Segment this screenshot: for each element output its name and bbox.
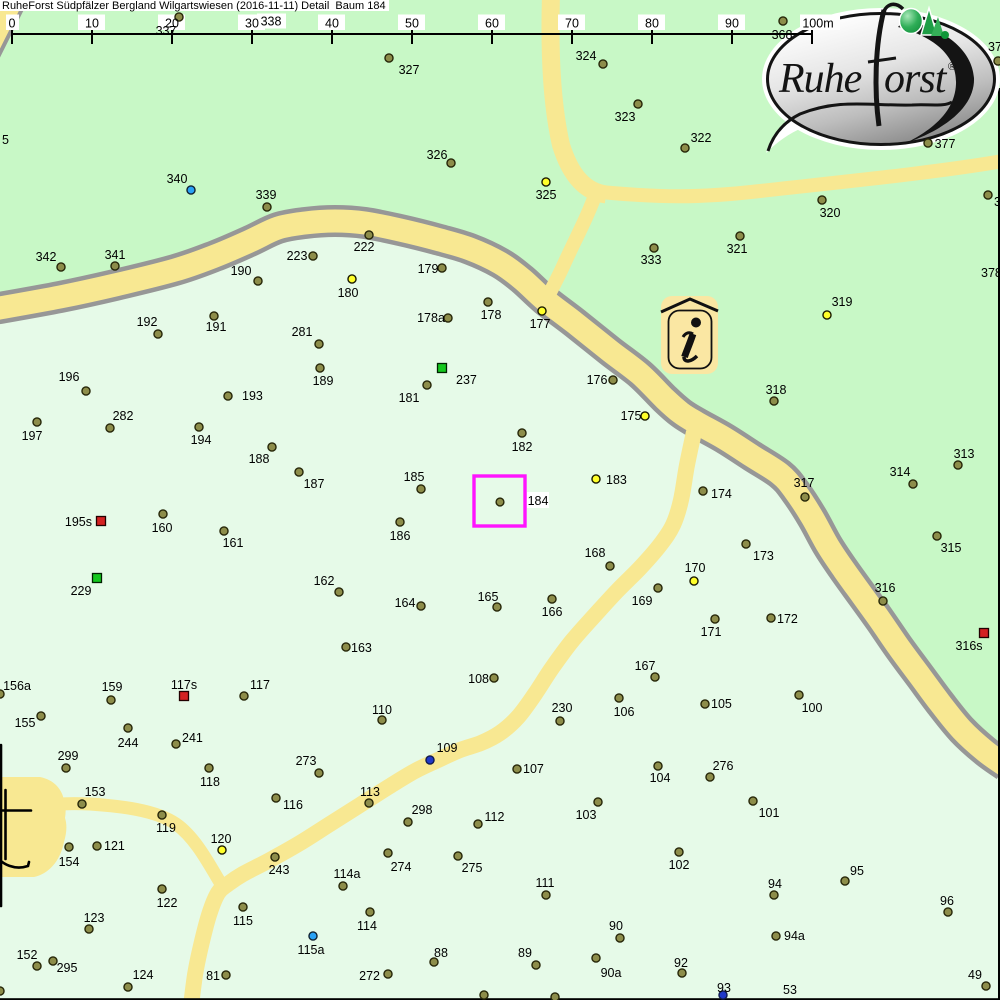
svg-text:100m: 100m [802,17,833,31]
svg-text:241: 241 [182,731,203,745]
svg-text:275: 275 [462,861,483,875]
svg-text:318: 318 [766,383,787,397]
svg-text:173: 173 [753,549,774,563]
svg-text:322: 322 [691,131,712,145]
svg-text:40: 40 [325,17,339,31]
svg-text:120: 120 [211,832,232,846]
svg-text:117s: 117s [171,678,197,692]
svg-text:187: 187 [304,477,325,491]
svg-text:326: 326 [427,148,448,162]
svg-text:180: 180 [338,286,359,300]
svg-text:orst: orst [884,56,948,102]
svg-text:378: 378 [981,266,1000,280]
svg-text:116: 116 [283,798,303,812]
svg-text:315: 315 [941,541,962,555]
svg-text:339: 339 [256,188,277,202]
svg-text:53: 53 [783,983,797,997]
svg-text:161: 161 [223,536,244,550]
svg-text:272: 272 [359,969,380,983]
svg-text:319: 319 [832,295,853,309]
svg-text:111: 111 [535,876,554,890]
svg-text:0: 0 [9,17,16,31]
svg-text:112: 112 [485,810,505,824]
svg-text:107: 107 [523,762,544,776]
svg-text:169: 169 [632,594,653,608]
svg-text:124: 124 [133,968,154,982]
svg-text:321: 321 [727,242,748,256]
svg-text:183: 183 [606,473,627,487]
svg-text:170: 170 [685,561,706,575]
svg-text:110: 110 [372,703,392,717]
svg-text:94a: 94a [784,929,805,943]
svg-text:Ruhe: Ruhe [778,56,862,102]
svg-text:5: 5 [2,133,9,147]
svg-text:123: 123 [84,911,105,925]
svg-text:194: 194 [191,433,212,447]
svg-text:186: 186 [390,529,411,543]
svg-text:90: 90 [609,919,623,933]
svg-text:340: 340 [167,172,188,186]
svg-text:188: 188 [249,452,270,466]
svg-text:159: 159 [102,680,123,694]
svg-text:196: 196 [59,370,80,384]
svg-text:156a: 156a [3,679,31,693]
svg-text:185: 185 [404,470,425,484]
svg-text:176: 176 [587,373,608,387]
svg-text:323: 323 [615,110,636,124]
svg-text:171: 171 [701,625,722,639]
svg-text:30: 30 [245,17,259,31]
svg-text:324: 324 [576,49,597,63]
svg-text:94: 94 [768,877,782,891]
svg-text:89: 89 [518,946,532,960]
svg-text:338: 338 [261,15,282,29]
svg-text:93: 93 [717,981,731,995]
svg-text:164: 164 [395,596,416,610]
svg-text:222: 222 [354,240,375,254]
svg-text:165: 165 [478,590,499,604]
svg-text:195s: 195s [65,515,92,529]
svg-text:103: 103 [576,808,597,822]
svg-text:181: 181 [399,391,420,405]
svg-text:184: 184 [528,494,549,508]
svg-text:193: 193 [242,389,263,403]
svg-text:172: 172 [777,612,798,626]
svg-text:178a: 178a [417,311,445,325]
svg-text:163: 163 [351,641,372,655]
svg-text:®: ® [948,61,956,73]
svg-text:104: 104 [650,771,671,785]
svg-text:313: 313 [954,447,975,461]
svg-text:121: 121 [104,839,125,853]
svg-text:368: 368 [772,28,793,42]
svg-text:105: 105 [711,697,732,711]
svg-text:244: 244 [118,736,139,750]
svg-text:237: 237 [456,373,477,387]
svg-text:102: 102 [669,858,690,872]
svg-text:162: 162 [314,574,335,588]
svg-text:20: 20 [165,17,179,31]
svg-text:191: 191 [206,320,227,334]
svg-text:119: 119 [156,821,176,835]
svg-text:49: 49 [968,968,982,982]
svg-text:154: 154 [59,855,80,869]
svg-text:90: 90 [725,17,739,31]
svg-text:152: 152 [17,948,38,962]
svg-text:282: 282 [113,409,134,423]
svg-text:376: 376 [988,40,1000,54]
svg-text:341: 341 [105,248,126,262]
svg-text:276: 276 [713,759,734,773]
svg-text:92: 92 [674,956,688,970]
svg-text:81: 81 [206,969,220,983]
svg-text:113: 113 [360,785,380,799]
svg-text:117: 117 [250,678,270,692]
svg-text:190: 190 [231,264,252,278]
svg-text:177: 177 [530,317,551,331]
svg-text:96: 96 [940,894,954,908]
svg-text:80: 80 [645,17,659,31]
svg-text:115a: 115a [298,943,325,957]
svg-text:192: 192 [137,315,158,329]
svg-text:189: 189 [313,374,334,388]
svg-text:174: 174 [711,487,732,501]
svg-text:50: 50 [405,17,419,31]
svg-text:299: 299 [58,749,79,763]
svg-text:10: 10 [85,17,99,31]
svg-text:178: 178 [481,308,502,322]
svg-text:179: 179 [418,262,439,276]
svg-text:168: 168 [585,546,606,560]
svg-text:90a: 90a [601,966,622,980]
svg-text:281: 281 [292,325,313,339]
svg-text:118: 118 [200,775,220,789]
svg-text:88: 88 [434,946,448,960]
svg-text:155: 155 [15,716,36,730]
svg-text:109: 109 [437,741,458,755]
svg-text:317: 317 [794,476,815,490]
svg-text:106: 106 [614,705,635,719]
svg-text:197: 197 [22,429,43,443]
svg-text:230: 230 [552,701,573,715]
svg-text:295: 295 [57,961,78,975]
svg-text:95: 95 [850,864,864,878]
svg-text:115: 115 [233,914,253,928]
svg-text:223: 223 [287,249,308,263]
svg-text:108: 108 [468,672,489,686]
svg-text:375: 375 [994,195,1000,209]
svg-text:274: 274 [391,860,412,874]
svg-text:100: 100 [802,701,823,715]
svg-text:175: 175 [621,409,642,423]
svg-text:314: 314 [890,465,911,479]
svg-text:160: 160 [152,521,173,535]
svg-text:327: 327 [399,63,420,77]
svg-text:167: 167 [635,659,656,673]
svg-text:377: 377 [935,137,956,151]
svg-text:316: 316 [875,581,896,595]
svg-text:60: 60 [485,17,499,31]
svg-text:182: 182 [512,440,533,454]
svg-text:273: 273 [296,754,317,768]
svg-text:70: 70 [565,17,579,31]
svg-text:333: 333 [641,253,662,267]
svg-text:114: 114 [357,919,377,933]
svg-text:243: 243 [269,863,290,877]
svg-text:101: 101 [759,806,780,820]
svg-text:153: 153 [85,785,106,799]
svg-text:166: 166 [542,605,563,619]
svg-text:114a: 114a [334,867,361,881]
svg-text:316s: 316s [955,639,982,653]
svg-text:320: 320 [820,206,841,220]
svg-text:325: 325 [536,188,557,202]
svg-text:229: 229 [71,584,92,598]
svg-text:122: 122 [157,896,178,910]
svg-text:342: 342 [36,250,57,264]
svg-text:RuheForst Südpfälzer Bergland: RuheForst Südpfälzer Bergland Wilgartswi… [2,0,386,12]
svg-text:298: 298 [412,803,433,817]
